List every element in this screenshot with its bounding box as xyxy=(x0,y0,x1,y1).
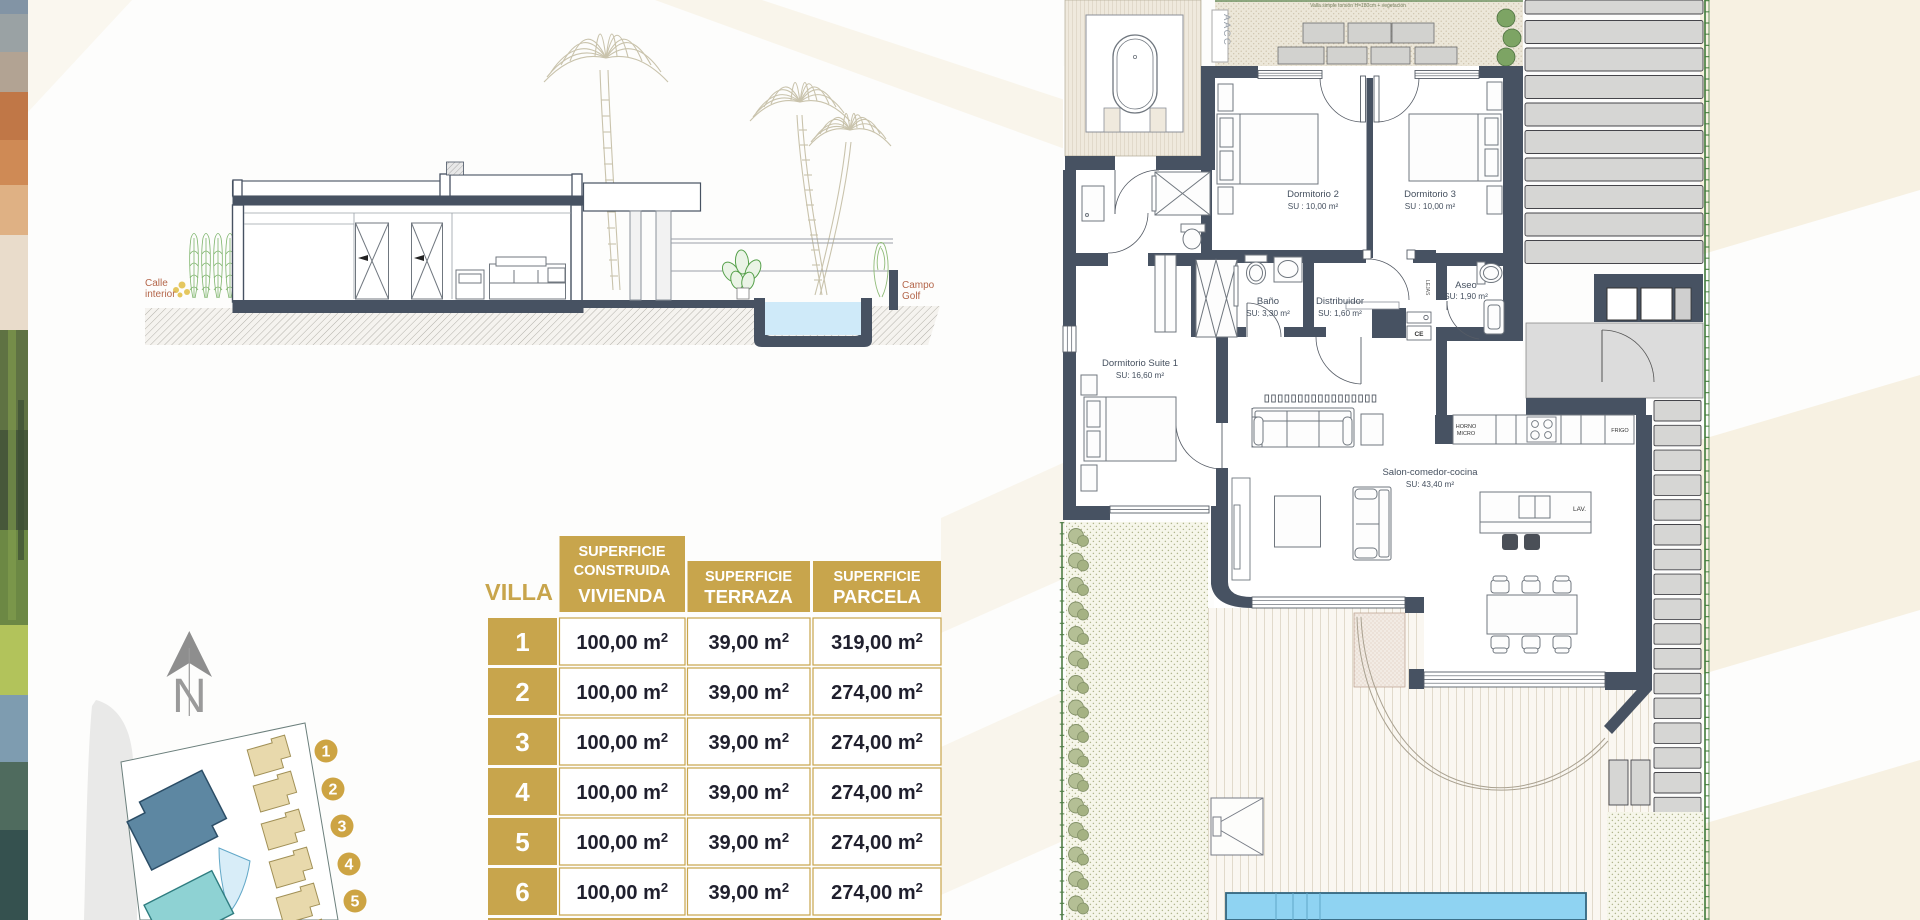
svg-text:Campo: Campo xyxy=(902,280,935,291)
svg-text:100,00 m2: 100,00 m2 xyxy=(576,830,668,854)
svg-text:39,00 m2: 39,00 m2 xyxy=(708,880,789,904)
svg-text:39,00 m2: 39,00 m2 xyxy=(708,680,789,704)
svg-text:SU : 10,00 m²: SU : 10,00 m² xyxy=(1288,202,1339,211)
svg-text:Aseo: Aseo xyxy=(1455,280,1477,291)
svg-text:SUPERFICIE: SUPERFICIE xyxy=(705,569,792,585)
svg-text:1: 1 xyxy=(322,744,331,761)
svg-text:VILLA: VILLA xyxy=(485,579,553,605)
svg-text:319,00 m2: 319,00 m2 xyxy=(831,630,923,654)
svg-text:Salon-comedor-cocina: Salon-comedor-cocina xyxy=(1382,467,1478,478)
svg-text:6: 6 xyxy=(515,877,529,907)
svg-text:SU: 1,90 m²: SU: 1,90 m² xyxy=(1444,292,1488,301)
svg-text:MICRO: MICRO xyxy=(1457,431,1476,437)
svg-text:PARCELA: PARCELA xyxy=(833,586,921,607)
svg-text:SU: 3,30 m²: SU: 3,30 m² xyxy=(1246,309,1290,318)
svg-text:Valla simple torsión H=180cm +: Valla simple torsión H=180cm + vegetació… xyxy=(1310,3,1406,9)
svg-text:100,00 m2: 100,00 m2 xyxy=(576,730,668,754)
svg-text:100,00 m2: 100,00 m2 xyxy=(576,880,668,904)
svg-text:LAV.: LAV. xyxy=(1573,506,1586,513)
svg-text:39,00 m2: 39,00 m2 xyxy=(708,830,789,854)
svg-text:FRIGO: FRIGO xyxy=(1611,428,1629,434)
svg-text:39,00 m2: 39,00 m2 xyxy=(708,630,789,654)
svg-text:SU: 1,60 m²: SU: 1,60 m² xyxy=(1318,309,1362,318)
svg-text:interior: interior xyxy=(145,289,176,300)
svg-text:SU: 43,40 m²: SU: 43,40 m² xyxy=(1406,480,1455,489)
svg-text:3: 3 xyxy=(338,819,347,836)
svg-text:2: 2 xyxy=(329,782,338,799)
svg-text:5: 5 xyxy=(515,827,529,857)
svg-text:Dormitorio Suite 1: Dormitorio Suite 1 xyxy=(1102,358,1178,369)
svg-text:100,00 m2: 100,00 m2 xyxy=(576,780,668,804)
svg-text:1: 1 xyxy=(515,627,529,657)
svg-text:274,00 m2: 274,00 m2 xyxy=(831,730,923,754)
svg-text:Distribuidor: Distribuidor xyxy=(1316,296,1364,307)
svg-text:N: N xyxy=(172,670,207,723)
svg-text:Dormitorio 2: Dormitorio 2 xyxy=(1287,189,1339,200)
svg-text:AACC: AACC xyxy=(1221,14,1232,46)
svg-text:SUPERFICIE: SUPERFICIE xyxy=(833,569,920,585)
svg-text:274,00 m2: 274,00 m2 xyxy=(831,780,923,804)
svg-text:5: 5 xyxy=(351,894,360,911)
svg-text:SU: 16,60 m²: SU: 16,60 m² xyxy=(1116,371,1165,380)
svg-text:LEJAS: LEJAS xyxy=(1424,280,1430,296)
svg-text:Baño: Baño xyxy=(1257,296,1279,307)
svg-text:VIVIENDA: VIVIENDA xyxy=(578,585,665,606)
svg-text:HORNO: HORNO xyxy=(1456,424,1477,430)
svg-text:SU : 10,00 m²: SU : 10,00 m² xyxy=(1405,202,1456,211)
svg-text:Dormitorio 3: Dormitorio 3 xyxy=(1404,189,1456,200)
svg-text:CE: CE xyxy=(1414,331,1424,338)
svg-text:TERRAZA: TERRAZA xyxy=(704,586,792,607)
svg-text:274,00 m2: 274,00 m2 xyxy=(831,880,923,904)
svg-text:39,00 m2: 39,00 m2 xyxy=(708,730,789,754)
svg-text:100,00 m2: 100,00 m2 xyxy=(576,680,668,704)
svg-text:274,00 m2: 274,00 m2 xyxy=(831,830,923,854)
svg-text:SUPERFICIE: SUPERFICIE xyxy=(578,544,665,560)
svg-text:4: 4 xyxy=(515,777,530,807)
svg-text:3: 3 xyxy=(515,727,529,757)
svg-text:39,00 m2: 39,00 m2 xyxy=(708,780,789,804)
svg-text:2: 2 xyxy=(515,677,529,707)
svg-text:4: 4 xyxy=(345,857,354,874)
svg-text:274,00 m2: 274,00 m2 xyxy=(831,680,923,704)
svg-text:CONSTRUIDA: CONSTRUIDA xyxy=(574,563,671,579)
svg-text:Golf: Golf xyxy=(902,291,921,302)
svg-text:100,00 m2: 100,00 m2 xyxy=(576,630,668,654)
svg-text:Calle: Calle xyxy=(145,278,168,289)
